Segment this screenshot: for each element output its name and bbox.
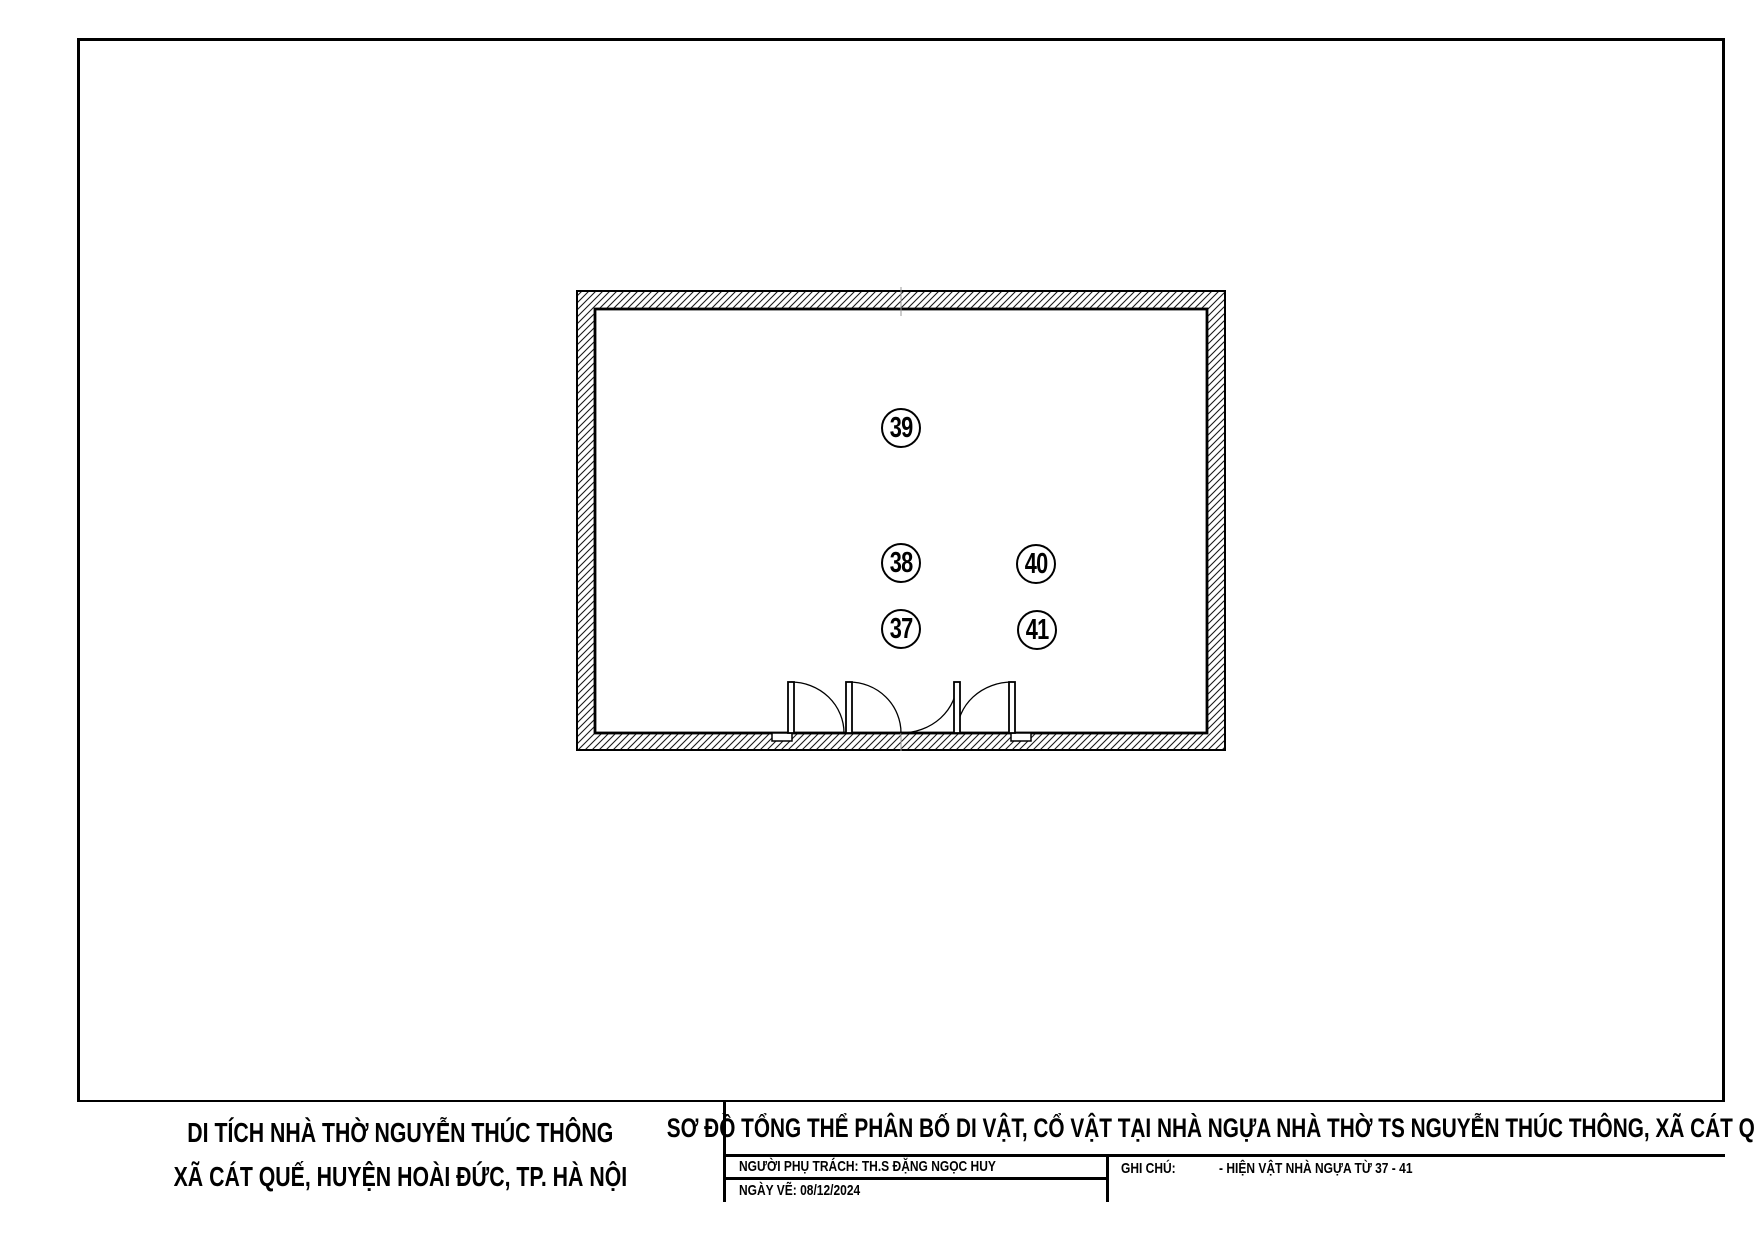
note-text: - HIỆN VẬT NHÀ NGỰA TỪ 37 - 41 <box>1219 1160 1413 1177</box>
door-leaf <box>846 682 852 733</box>
site-name-line2: XÃ CÁT QUẾ, HUYỆN HOÀI ĐỨC, TP. HÀ NỘI <box>77 1160 723 1194</box>
artifact-marker: 40 <box>1016 544 1056 584</box>
door-sill-right <box>1011 733 1031 741</box>
marker-label: 38 <box>890 549 913 578</box>
drawing-title: SƠ ĐỒ TỔNG THỂ PHÂN BỐ DI VẬT, CỔ VẬT TẠ… <box>727 1102 1723 1154</box>
marker-label: 37 <box>890 615 913 644</box>
wall-inner-outline <box>595 309 1207 733</box>
door-swing-arc <box>901 682 957 733</box>
marker-label: 41 <box>1026 616 1049 645</box>
door-sill-left <box>772 733 792 741</box>
date-cell: NGÀY VẼ: 08/12/2024 <box>727 1179 1104 1202</box>
marker-label: 40 <box>1025 550 1048 579</box>
door-swing-arc <box>849 682 901 733</box>
floor-plan <box>576 290 1226 751</box>
door-swing-arc <box>791 682 844 733</box>
marker-label: 39 <box>890 414 913 443</box>
door-leaf <box>954 682 960 733</box>
site-name-line1: DI TÍCH NHÀ THỜ NGUYỄN THÚC THÔNG <box>77 1118 723 1148</box>
manager-cell: NGƯỜI PHỤ TRÁCH: TH.S ĐẶNG NGỌC HUY <box>727 1156 1104 1177</box>
door-leaf <box>788 682 794 733</box>
door-swing-arc <box>957 682 1012 733</box>
artifact-marker: 37 <box>881 609 921 649</box>
wall-outer-outline <box>577 291 1225 750</box>
wall-hatch <box>576 290 1226 751</box>
note-label: GHI CHÚ: <box>1121 1160 1176 1177</box>
door-leaf <box>1009 682 1015 733</box>
title-block: DI TÍCH NHÀ THỜ NGUYỄN THÚC THÔNG XÃ CÁT… <box>77 1100 1725 1200</box>
artifact-marker: 39 <box>881 408 921 448</box>
drawing-sheet: 39 38 40 37 41 DI TÍCH NHÀ THỜ NGUYỄN TH… <box>0 0 1755 1241</box>
note-cell: GHI CHÚ: - HIỆN VẬT NHÀ NGỰA TỪ 37 - 41 <box>1109 1156 1723 1202</box>
artifact-marker: 41 <box>1017 610 1057 650</box>
artifact-marker: 38 <box>881 543 921 583</box>
